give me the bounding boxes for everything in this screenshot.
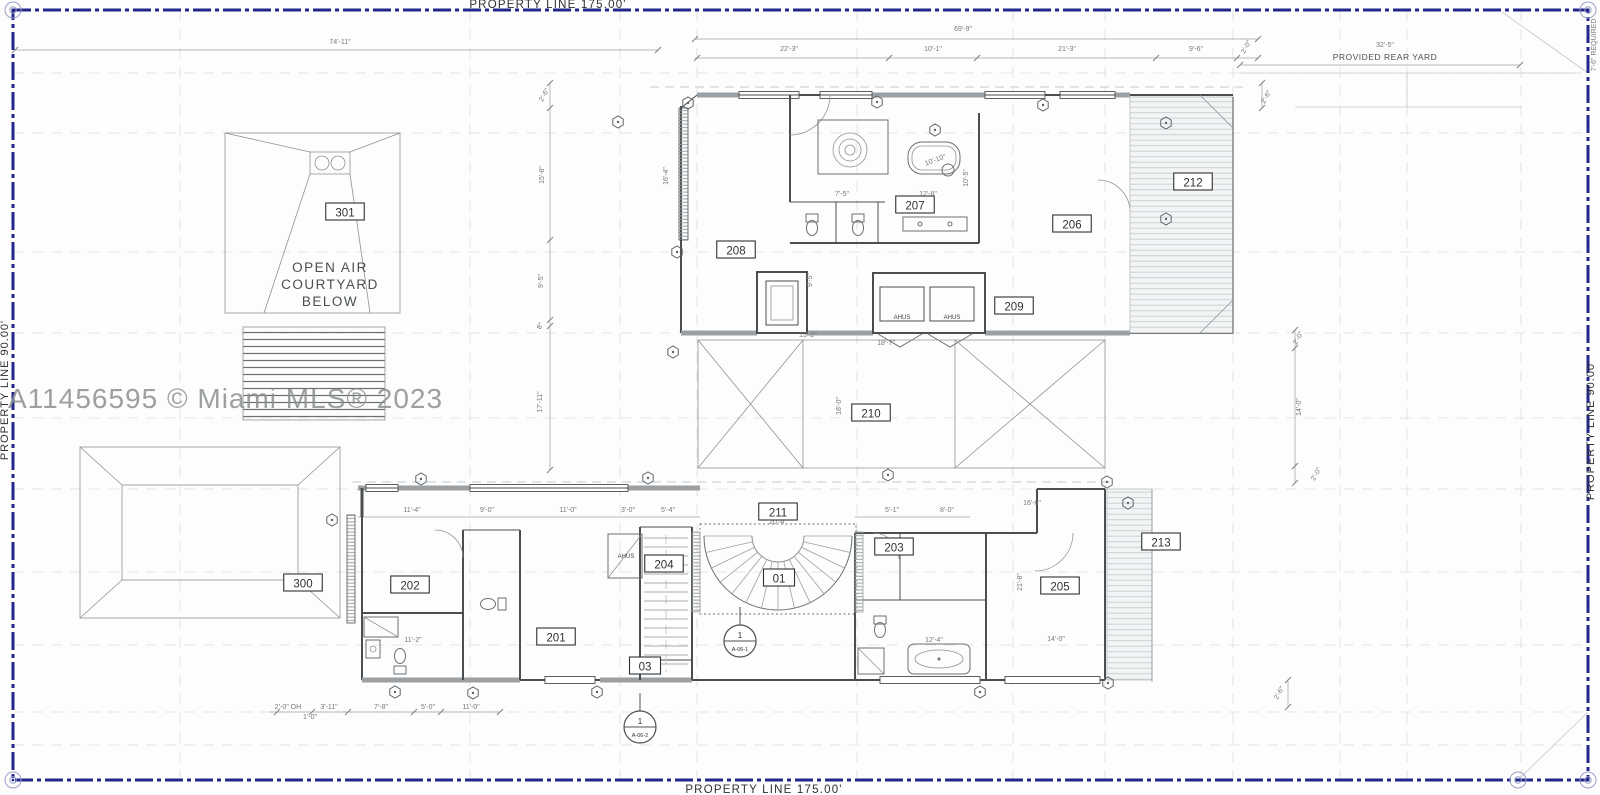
svg-text:211: 211	[769, 508, 787, 520]
mls-watermark: A11456595 © Miami MLS® 2023	[8, 383, 443, 414]
svg-text:210: 210	[861, 409, 880, 421]
room-label-205: 205	[1041, 577, 1080, 594]
dimension-text: 10'-5"	[963, 169, 970, 187]
property-line-right-label: PROPERTY LINE 90.00'	[1585, 360, 1597, 500]
svg-text:209: 209	[1004, 302, 1023, 314]
svg-text:300: 300	[293, 579, 312, 591]
dimension-text: 74'-11"	[329, 39, 351, 46]
room-label-202: 202	[391, 576, 430, 593]
courtyard-label-line3: BELOW	[302, 294, 358, 309]
room-label-01: 01	[764, 569, 795, 586]
room-label-210: 210	[852, 404, 891, 421]
room-label-213: 213	[1142, 533, 1181, 550]
property-line-bottom-label: PROPERTY LINE 175.00'	[685, 784, 842, 795]
svg-text:301: 301	[335, 208, 354, 220]
room-label-301: 301	[326, 203, 365, 220]
dimension-text: 7'-5"	[835, 191, 849, 198]
louver-screen-wall	[347, 515, 355, 623]
dimension-text: 7'-8"	[374, 704, 388, 711]
dimension-text: 11'-2"	[404, 637, 422, 644]
dimension-text: 2'-0" OH	[275, 704, 301, 711]
dimension-text: 16'-0"	[1023, 500, 1041, 507]
equipment-label: AHUS	[894, 315, 911, 321]
floor-plan-sheet: 74'-11"69'-9"22'-3"10'-1"21'-3"9'-6"2'-0…	[0, 0, 1600, 795]
dimension-text: 1'-0"	[303, 714, 317, 721]
dimension-text: 22'-3"	[780, 46, 798, 53]
dimension-text: 13'-2"	[799, 332, 817, 339]
room-label-204: 204	[645, 555, 684, 572]
svg-text:212: 212	[1183, 178, 1202, 190]
room-label-211: 211	[759, 503, 798, 520]
courtyard-label-line2: COURTYARD	[281, 277, 379, 292]
svg-text:A-06-2: A-06-2	[632, 733, 649, 739]
svg-text:204: 204	[654, 560, 674, 572]
equipment-label: AHUS	[618, 554, 635, 560]
room-label-203: 203	[875, 538, 914, 555]
svg-text:03: 03	[639, 662, 652, 674]
dimension-text: 11'-4"	[403, 507, 421, 514]
svg-text:207: 207	[905, 201, 924, 213]
svg-text:1: 1	[738, 631, 743, 640]
dimension-text: 16'-4"	[663, 167, 670, 185]
dimension-text: 11'-0"	[462, 704, 480, 711]
svg-text:205: 205	[1050, 582, 1069, 594]
room-label-03: 03	[630, 657, 661, 674]
dimension-text: 3'-0"	[621, 507, 635, 514]
dimension-text: 9'-5"	[538, 274, 545, 288]
room-label-208: 208	[717, 241, 756, 258]
room-label-212: 212	[1174, 173, 1213, 190]
svg-text:202: 202	[400, 581, 419, 593]
dimension-text: 3'-11"	[320, 704, 338, 711]
dimension-text: 18'-7"	[877, 340, 895, 347]
dimension-text: 5'-4"	[661, 507, 675, 514]
dimension-text: 32'-5"	[1376, 42, 1394, 49]
dimension-text: 10'-1"	[924, 46, 942, 53]
dimension-text: 21'-3"	[1058, 46, 1076, 53]
dimension-text: 17'-11"	[537, 391, 544, 413]
svg-text:213: 213	[1151, 538, 1170, 550]
room-label-207: 207	[896, 196, 935, 213]
courtyard-label-line1: OPEN AIR	[292, 260, 368, 275]
dimension-text: 18'-0"	[836, 397, 843, 415]
dimension-text: 14'-0"	[1296, 398, 1303, 416]
dimension-text: 9'-0"	[480, 507, 494, 514]
dimension-text: 15'-8"	[539, 166, 546, 184]
room-label-206: 206	[1053, 215, 1092, 232]
deck-212	[1130, 95, 1233, 333]
svg-text:206: 206	[1062, 220, 1081, 232]
dimension-text: 9'-6"	[1189, 46, 1203, 53]
equipment-label: AHUS	[944, 315, 961, 321]
dimension-text: 5'-1"	[885, 507, 899, 514]
dimension-text: 14'-0"	[1047, 636, 1065, 643]
dimension-text: 9'-5"	[807, 273, 814, 287]
louver-screen-wall	[679, 108, 688, 240]
svg-text:208: 208	[726, 246, 745, 258]
required-side-note: 7'-6" REQUIRED	[1591, 19, 1598, 72]
rear-yard-label: PROVIDED REAR YARD	[1333, 52, 1438, 62]
svg-text:201: 201	[546, 633, 565, 645]
dimension-text: 12'-4"	[925, 637, 943, 644]
dimension-text: 21'-8"	[1017, 573, 1024, 591]
dimension-text: 8'-0"	[940, 507, 954, 514]
svg-text:A-06-1: A-06-1	[732, 647, 749, 653]
room-label-209: 209	[995, 297, 1034, 314]
deck-213	[1107, 489, 1152, 682]
svg-text:203: 203	[884, 543, 903, 555]
dimension-text: 69'-9"	[954, 26, 972, 33]
dimension-text: 11'-0"	[559, 507, 577, 514]
property-line-top-label: PROPERTY LINE 175.00'	[469, 0, 626, 11]
room-label-201: 201	[537, 628, 576, 645]
floor-plan-drawing: 74'-11"69'-9"22'-3"10'-1"21'-3"9'-6"2'-0…	[0, 0, 1600, 795]
room-label-300: 300	[284, 574, 323, 591]
dimension-text: 5'-0"	[421, 704, 435, 711]
svg-text:1: 1	[638, 717, 643, 726]
svg-text:01: 01	[773, 574, 786, 586]
